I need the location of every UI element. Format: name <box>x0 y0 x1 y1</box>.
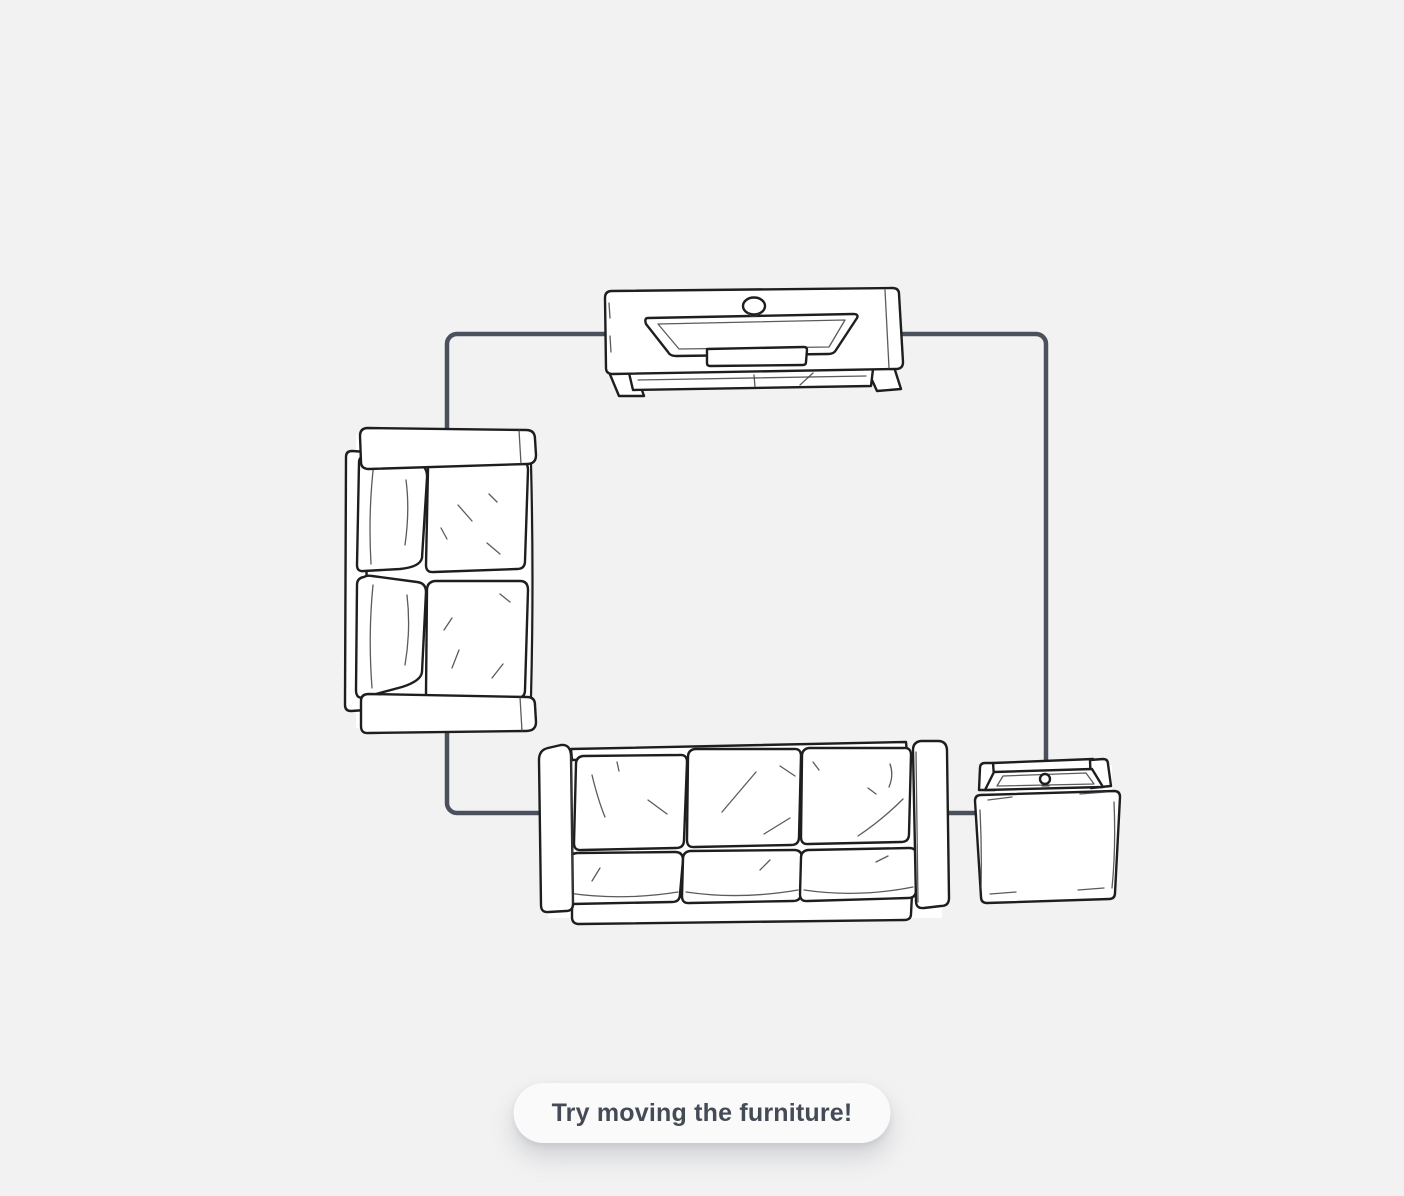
sofa-right-armrest <box>913 741 949 908</box>
sofa-back-cushion <box>574 755 687 850</box>
side-table-knob <box>1040 774 1050 784</box>
hint-pill[interactable]: Try moving the furniture! <box>514 1083 891 1143</box>
loveseat-icon[interactable] <box>345 428 536 733</box>
tv-stand <box>707 347 807 366</box>
sofa-left-armrest <box>539 745 573 912</box>
tv-console-icon[interactable] <box>605 288 903 396</box>
tv-console-knob <box>743 298 765 315</box>
room-wall-outline <box>447 334 1046 813</box>
hint-label: Try moving the furniture! <box>552 1099 853 1127</box>
room-canvas <box>0 0 1404 1196</box>
loveseat-seat-cushion <box>426 460 528 572</box>
sofa-back-cushion <box>687 749 801 847</box>
loveseat-top-armrest <box>360 428 536 469</box>
side-table-icon[interactable] <box>975 759 1120 903</box>
loveseat-back-cushion <box>356 576 426 698</box>
furniture-playground: Try moving the furniture! <box>0 0 1404 1196</box>
three-seat-sofa-icon[interactable] <box>539 741 949 924</box>
loveseat-bottom-armrest <box>361 694 536 733</box>
side-table-front-panel <box>975 791 1120 903</box>
sofa-back-cushion <box>801 748 911 844</box>
loveseat-seat-cushion <box>426 581 528 700</box>
